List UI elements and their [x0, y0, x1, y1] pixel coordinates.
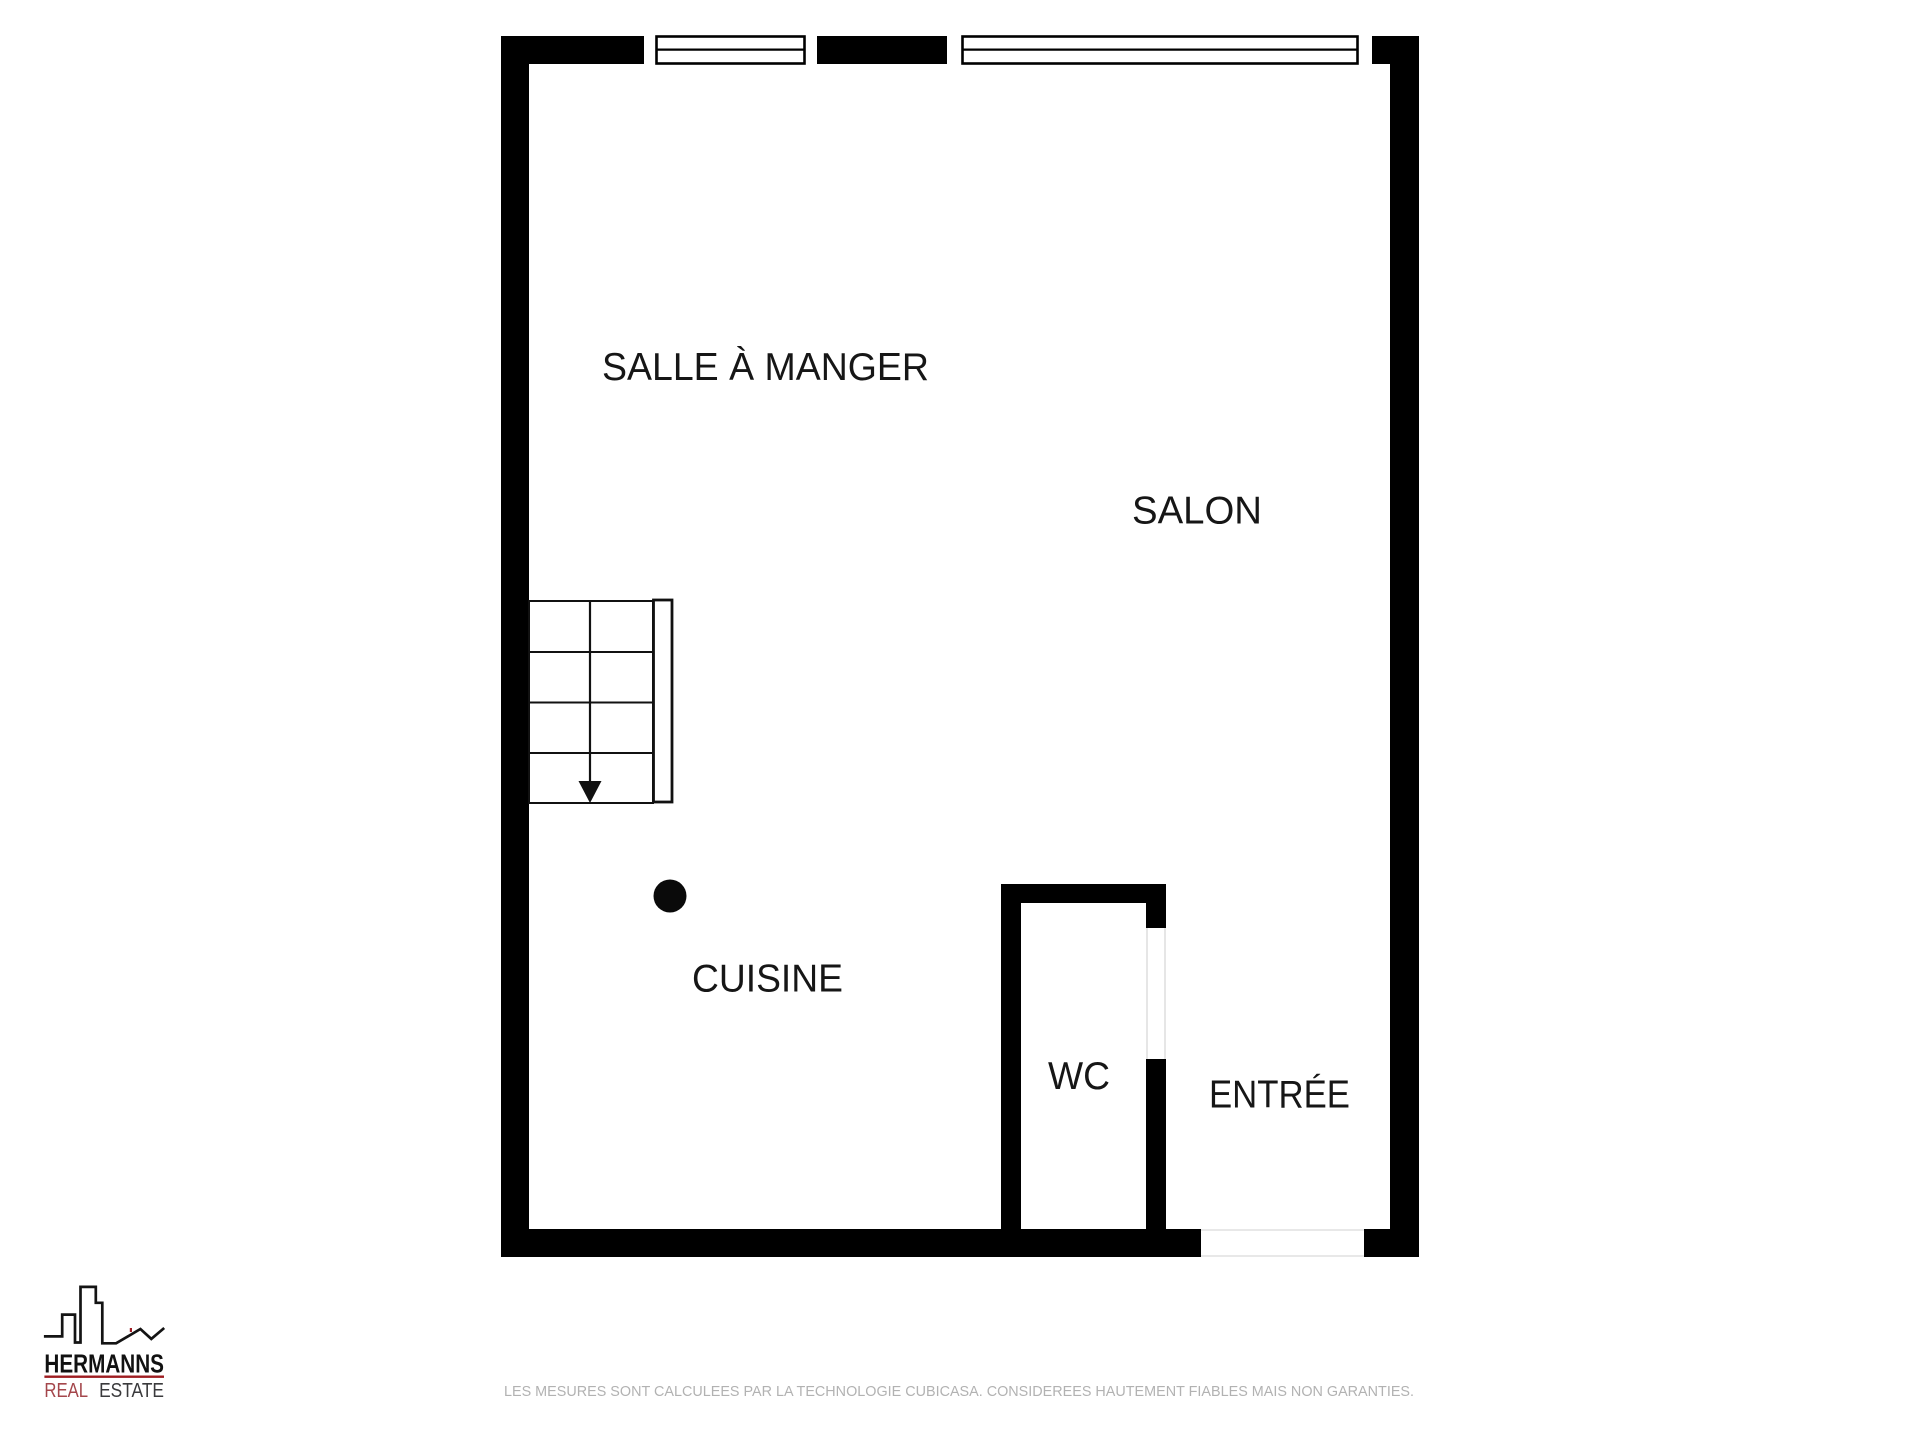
- svg-text:HERMANNS: HERMANNS: [44, 1350, 164, 1378]
- svg-text:ENTRÉE: ENTRÉE: [1209, 1074, 1350, 1117]
- svg-text:REAL: REAL: [44, 1380, 88, 1402]
- svg-text:ESTATE: ESTATE: [99, 1380, 164, 1402]
- svg-text:SALLE À MANGER: SALLE À MANGER: [602, 346, 929, 389]
- svg-text:WC: WC: [1048, 1055, 1110, 1098]
- svg-text:CUISINE: CUISINE: [692, 958, 843, 1001]
- svg-text:SALON: SALON: [1132, 490, 1262, 533]
- svg-text:LES MESURES SONT CALCULEES PAR: LES MESURES SONT CALCULEES PAR LA TECHNO…: [504, 1384, 1414, 1400]
